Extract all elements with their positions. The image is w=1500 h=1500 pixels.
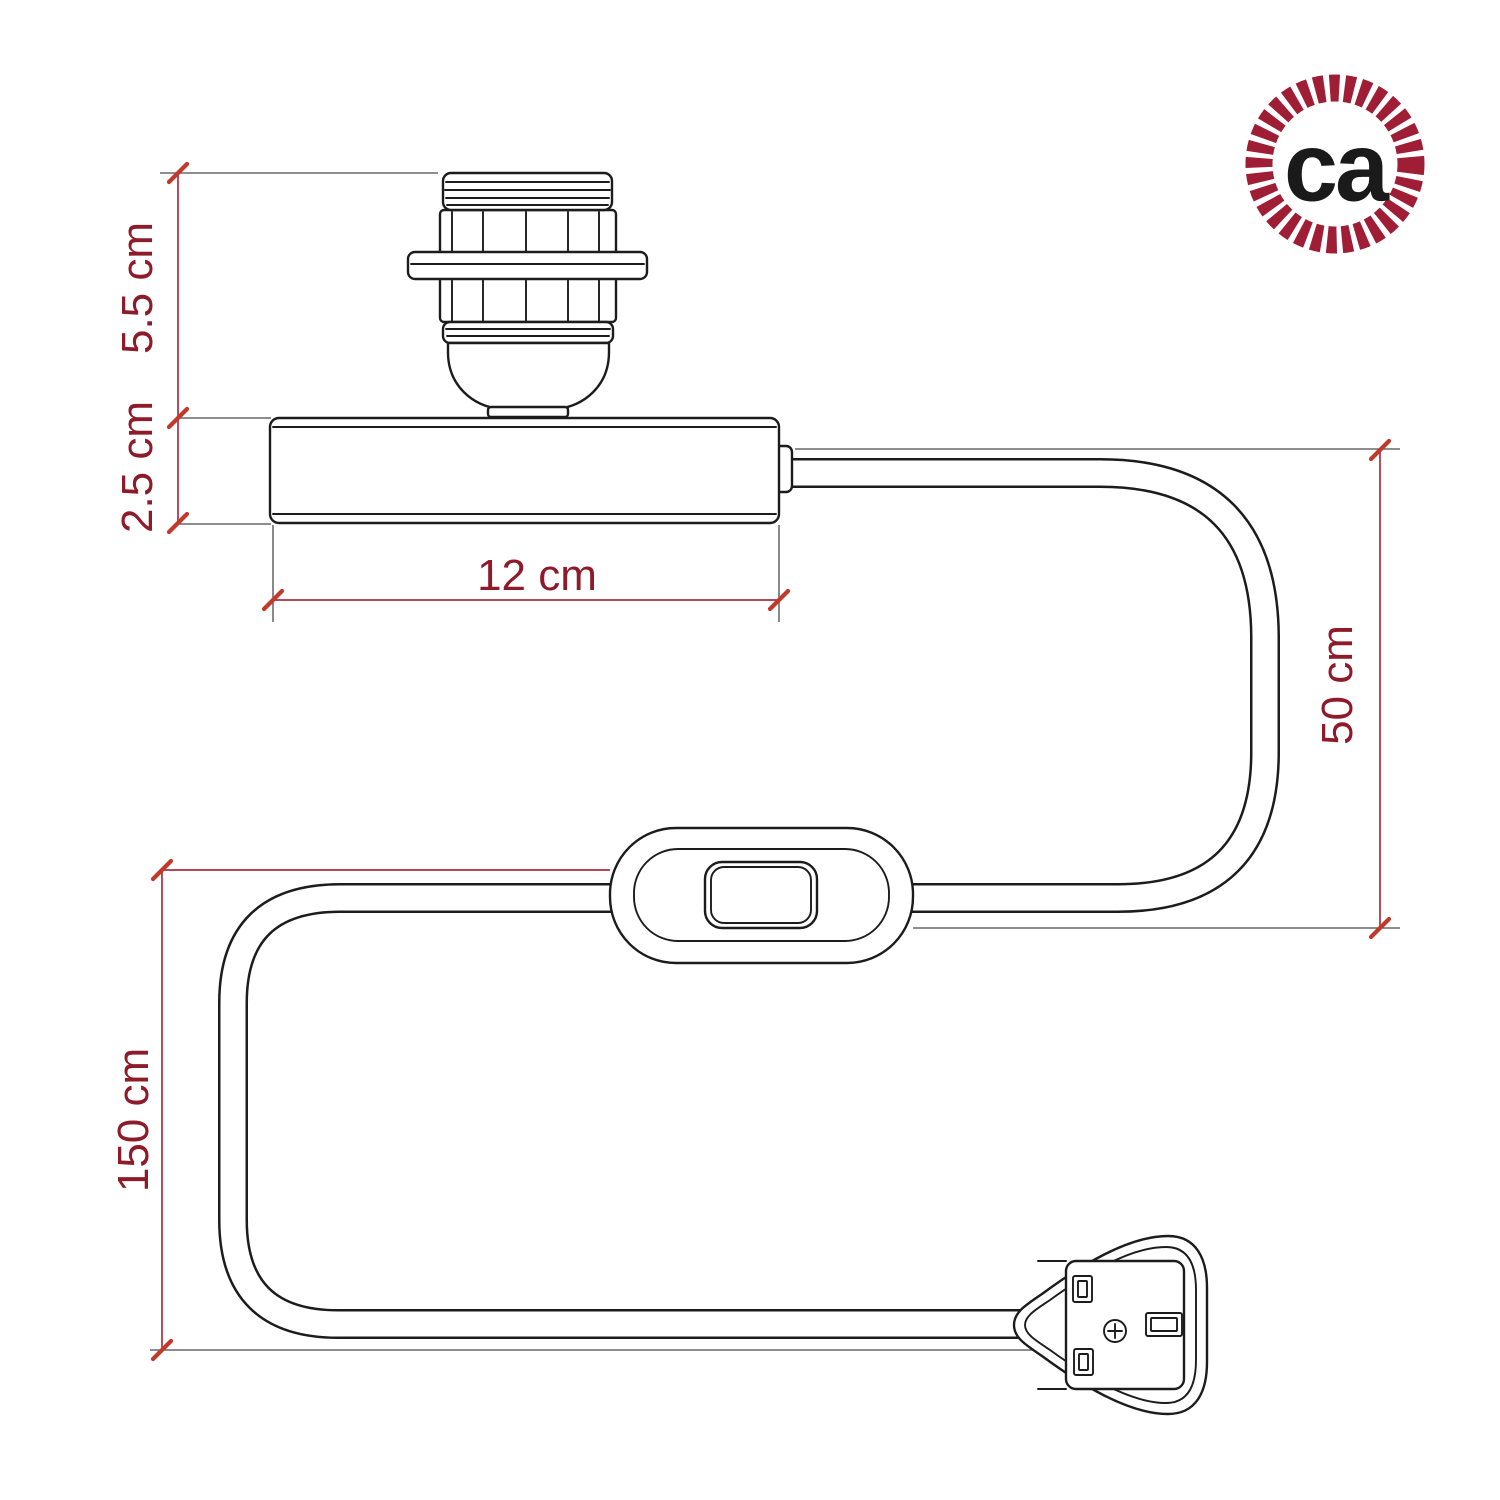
dimension-label-lower-cable: 150 cm bbox=[109, 1048, 158, 1192]
extension-lines bbox=[150, 173, 1400, 1350]
brand-logo: ca bbox=[1259, 88, 1411, 240]
plug-screw-icon bbox=[1104, 1320, 1126, 1342]
dimension-lines bbox=[162, 173, 1380, 1350]
brand-logo-text: ca bbox=[1284, 113, 1390, 222]
inline-switch-drawing bbox=[610, 828, 913, 963]
uk-plug-drawing bbox=[1014, 1236, 1207, 1414]
diagram-canvas: 5.5 cm 2.5 cm 12 cm 50 cm 150 cm ca bbox=[0, 0, 1500, 1500]
thread-ring-top bbox=[443, 173, 612, 210]
thread-ring-bottom bbox=[443, 322, 613, 343]
dimension-label-base-width: 12 cm bbox=[477, 551, 597, 600]
dimension-label-socket-height: 5.5 cm bbox=[113, 222, 162, 354]
dimension-ticks bbox=[153, 164, 1389, 1359]
lamp-base-drawing bbox=[270, 418, 792, 523]
socket-cup bbox=[448, 343, 609, 417]
shade-ring bbox=[408, 252, 647, 279]
cable-lower-run bbox=[233, 898, 1030, 1324]
lamp-holder-drawing bbox=[408, 173, 647, 417]
lamp-kit-dimension-diagram: 5.5 cm 2.5 cm 12 cm 50 cm 150 cm ca bbox=[0, 0, 1500, 1500]
switch-button bbox=[705, 862, 817, 928]
dimension-labels: 5.5 cm 2.5 cm 12 cm 50 cm 150 cm bbox=[109, 222, 1362, 1192]
dimension-label-base-height: 2.5 cm bbox=[113, 401, 162, 533]
dimension-label-upper-cable: 50 cm bbox=[1313, 625, 1362, 745]
